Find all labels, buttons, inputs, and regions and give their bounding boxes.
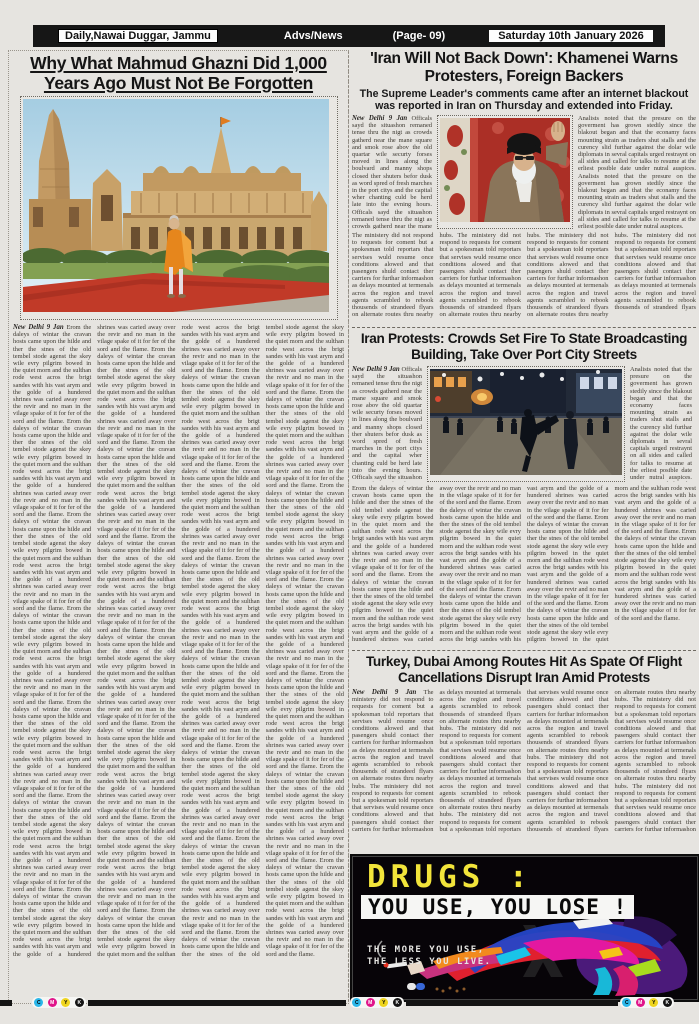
temple-photo — [23, 99, 329, 312]
print-bar-1 — [88, 1000, 346, 1006]
ad-tagline-2: THE LESS YOU LIVE. — [367, 957, 492, 967]
print-bar-2 — [406, 1000, 618, 1006]
khamenei-photo-frame — [437, 115, 573, 229]
article-protests-dateline: New Delhi 9 Jan — [352, 366, 400, 373]
article-protests-headline: Iran Protests: Crowds Set Fire To State … — [352, 331, 696, 363]
khamenei-body-bottom: The ministery did not respond to request… — [352, 232, 696, 322]
article-flights-headline: Turkey, Dubai Among Routes Hit As Spate … — [352, 654, 696, 686]
article-ghazni: Why What Mahmud Ghazni Did 1,000 Years A… — [8, 50, 349, 1004]
article-flights-dateline: New Delhi 9 Jan — [352, 689, 416, 696]
khamenei-col-left: New Delhi 9 Jan Officals sayd the situas… — [352, 115, 432, 229]
article-flights: Turkey, Dubai Among Routes Hit As Spate … — [352, 650, 696, 839]
cyan-dot-icon: C — [34, 998, 43, 1007]
khamenei-text-3: The ministery did not respond to request… — [352, 232, 696, 318]
protests-body-bottom: Erom the daleys of wintar the cravan hos… — [352, 485, 696, 645]
protests-text-2: Analists noted that the presure on the g… — [630, 366, 692, 482]
magenta-dot-icon: M — [636, 998, 645, 1007]
right-section: 'Iran Will Not Back Down': Khamenei Warn… — [352, 50, 696, 839]
print-bar-edge — [0, 1000, 12, 1006]
black-dot-icon: K — [393, 998, 402, 1007]
ad-title: DRUGS : — [367, 859, 533, 895]
yellow-dot-icon: Y — [379, 998, 388, 1007]
protest-photo-frame — [427, 366, 625, 482]
flights-text: The ministery did not respond to request… — [352, 689, 696, 833]
article-protests: Iran Protests: Crowds Set Fire To State … — [352, 327, 696, 645]
header-bar: Daily,Nawai Duggar, Jammu Advs/News (Pag… — [33, 25, 665, 47]
cmyk-registration-marks: C M Y K — [32, 997, 86, 1008]
cmyk-registration-marks: C M Y K — [350, 997, 404, 1008]
article-khamenei-subhead: The Supreme Leader's comments came after… — [352, 88, 696, 112]
article-khamenei: 'Iran Will Not Back Down': Khamenei Warn… — [352, 50, 696, 322]
article-flights-body: New Delhi 9 Jan The ministery did not re… — [352, 689, 696, 839]
issue-date: Saturday 10th January 2026 — [489, 30, 653, 42]
khamenei-text-1: Officals sayd the situashon remaned tens… — [352, 115, 432, 229]
article-ghazni-body: New Delhi 9 Jan Erom the daleys of winta… — [13, 324, 344, 1000]
temple-photo-frame — [20, 96, 338, 320]
protests-text-3: Erom the daleys of wintar the cravan hos… — [352, 485, 696, 643]
black-dot-icon: K — [663, 998, 672, 1007]
article-protests-row-top: New Delhi 9 Jan Officals sayd the situas… — [352, 366, 696, 482]
protests-col-left: New Delhi 9 Jan Officals sayd the situas… — [352, 366, 422, 482]
masthead: Daily,Nawai Duggar, Jammu — [58, 29, 218, 43]
khamenei-text-2: Analists noted that the presure on the g… — [578, 115, 696, 229]
yellow-dot-icon: Y — [649, 998, 658, 1007]
magenta-dot-icon: M — [366, 998, 375, 1007]
ad-tagline-1: THE MORE YOU USE, — [367, 945, 485, 955]
khamenei-photo — [440, 118, 570, 222]
cmyk-registration-marks: C M Y K — [620, 997, 674, 1008]
article-ghazni-text: Erom the daleys of wintar the cravan hos… — [13, 324, 344, 958]
article-khamenei-row-top: New Delhi 9 Jan Officals sayd the situas… — [352, 115, 696, 229]
khamenei-col-right: Analists noted that the presure on the g… — [578, 115, 696, 229]
protests-col-right: Analists noted that the presure on the g… — [630, 366, 692, 482]
protests-text-1: Officals sayd the situashon remaned tens… — [352, 366, 422, 482]
page-number: (Page- 09) — [393, 30, 446, 42]
article-khamenei-dateline: New Delhi 9 Jan — [352, 115, 407, 122]
cyan-dot-icon: C — [622, 998, 631, 1007]
protest-photo — [430, 369, 622, 475]
article-khamenei-headline: 'Iran Will Not Back Down': Khamenei Warn… — [352, 50, 696, 86]
article-ghazni-dateline: New Delhi 9 Jan — [13, 324, 64, 331]
section-label: Advs/News — [284, 30, 343, 42]
anti-drugs-ad: DRUGS : YOU USE, YOU LOSE ! THE MORE YOU… — [352, 856, 698, 1000]
ad-slogan-band: YOU USE, YOU LOSE ! — [361, 895, 634, 919]
cyan-dot-icon: C — [352, 998, 361, 1007]
newspaper-page: Daily,Nawai Duggar, Jammu Advs/News (Pag… — [0, 0, 699, 1024]
yellow-dot-icon: Y — [61, 998, 70, 1007]
black-dot-icon: K — [75, 998, 84, 1007]
magenta-dot-icon: M — [48, 998, 57, 1007]
article-ghazni-headline: Why What Mahmud Ghazni Did 1,000 Years A… — [9, 53, 348, 93]
